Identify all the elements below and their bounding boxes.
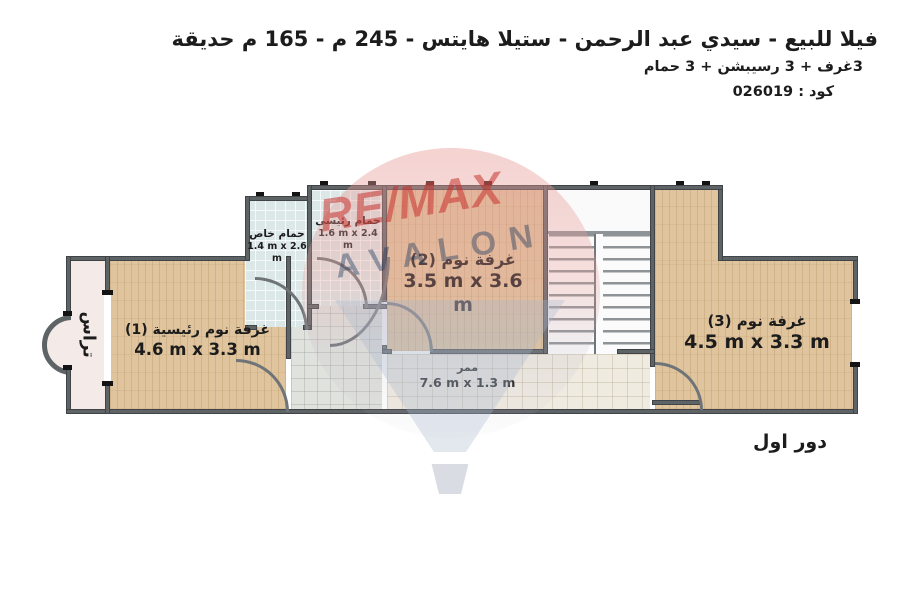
balcony-opening-cap-top (63, 311, 72, 316)
page-title: فيلا للبيع - سيدي عبد الرحمن - ستيلا هاي… (172, 27, 878, 51)
bedroom3-name: غرفة نوم (3) (672, 312, 842, 331)
vent-tick-4 (368, 181, 376, 185)
vent-tick-1 (256, 192, 264, 196)
vent-tick-5 (426, 181, 434, 185)
bedroom3-window (852, 304, 859, 362)
watermark-balloon-basket (427, 464, 473, 494)
listing-code: كود : 026019 (733, 84, 834, 100)
terrace-label: تراس (77, 275, 98, 395)
bedroom3-dims: 4.5 m x 3.3 m (672, 331, 842, 355)
private-bath-dims: 1.4 m x 2.6 m (244, 241, 310, 265)
master-bedroom-name: غرفة نوم رئيسية (1) (100, 322, 295, 340)
master-bath-label: حمام رئيسى 1.6 m x 2.4 m (312, 215, 384, 252)
bedroom-3-floor-upper (655, 190, 718, 261)
stairs-right-flight (603, 234, 650, 354)
bedroom3-window-cap-top (850, 299, 860, 304)
vent-tick-3 (320, 181, 328, 185)
master-bedroom-label: غرفة نوم رئيسية (1) 4.6 m x 3.3 m (100, 322, 295, 360)
master-bath-dims: 1.6 m x 2.4 m (312, 228, 384, 252)
wall-top-main (307, 185, 723, 190)
bedroom3-window-cap-bottom (850, 362, 860, 367)
terrace-door-cap-bottom (102, 381, 113, 386)
wall-private-bath-top (245, 196, 312, 201)
vent-tick-6 (484, 181, 492, 185)
wall-bedroom3-upper-right (718, 185, 723, 261)
wall-bedroom3-left (650, 185, 655, 367)
balcony-opening-cap-bottom (63, 365, 72, 370)
wall-bedroom3-top-right (718, 256, 858, 261)
vent-tick-8 (676, 181, 684, 185)
vent-tick-9 (702, 181, 710, 185)
page-subtitle: 3غرف + 3 رسيبشن + 3 حمام (644, 59, 863, 75)
floor-caption: دور اول (740, 431, 840, 455)
stairs-left-flight (549, 234, 594, 354)
corridor-dims: 7.6 m x 1.3 m (400, 375, 535, 391)
wall-corridor-end (617, 349, 655, 354)
bedroom2-name: غرفة نوم (2) (392, 250, 534, 270)
wall-terrace-left-upper (66, 256, 71, 315)
wall-top-left (66, 256, 250, 261)
wall-stairs-left (543, 185, 548, 354)
vent-tick-2 (292, 192, 300, 196)
terrace-door-cap-top (102, 290, 113, 295)
vent-tick-7 (590, 181, 598, 185)
wall-bottom (66, 409, 858, 414)
floor-plan-page: فيلا للبيع - سيدي عبد الرحمن - ستيلا هاي… (0, 0, 900, 599)
bedroom2-label: غرفة نوم (2) 3.5 m x 3.6 m (392, 250, 534, 318)
wall-bedroom2-bottom-right (430, 349, 548, 354)
bedroom2-dims: 3.5 m x 3.6 m (392, 270, 534, 318)
master-bath-name: حمام رئيسى (312, 215, 384, 228)
bedroom3-label: غرفة نوم (3) 4.5 m x 3.3 m (672, 312, 842, 355)
corridor-name: ممر (400, 361, 535, 375)
master-bedroom-dims: 4.6 m x 3.3 m (100, 340, 295, 361)
corridor-label: ممر 7.6 m x 1.3 m (400, 361, 535, 390)
private-bath-label: حمام خاص 1.4 m x 2.6 m (244, 228, 310, 265)
private-bath-name: حمام خاص (244, 228, 310, 241)
wall-terrace-left-lower (66, 367, 71, 414)
